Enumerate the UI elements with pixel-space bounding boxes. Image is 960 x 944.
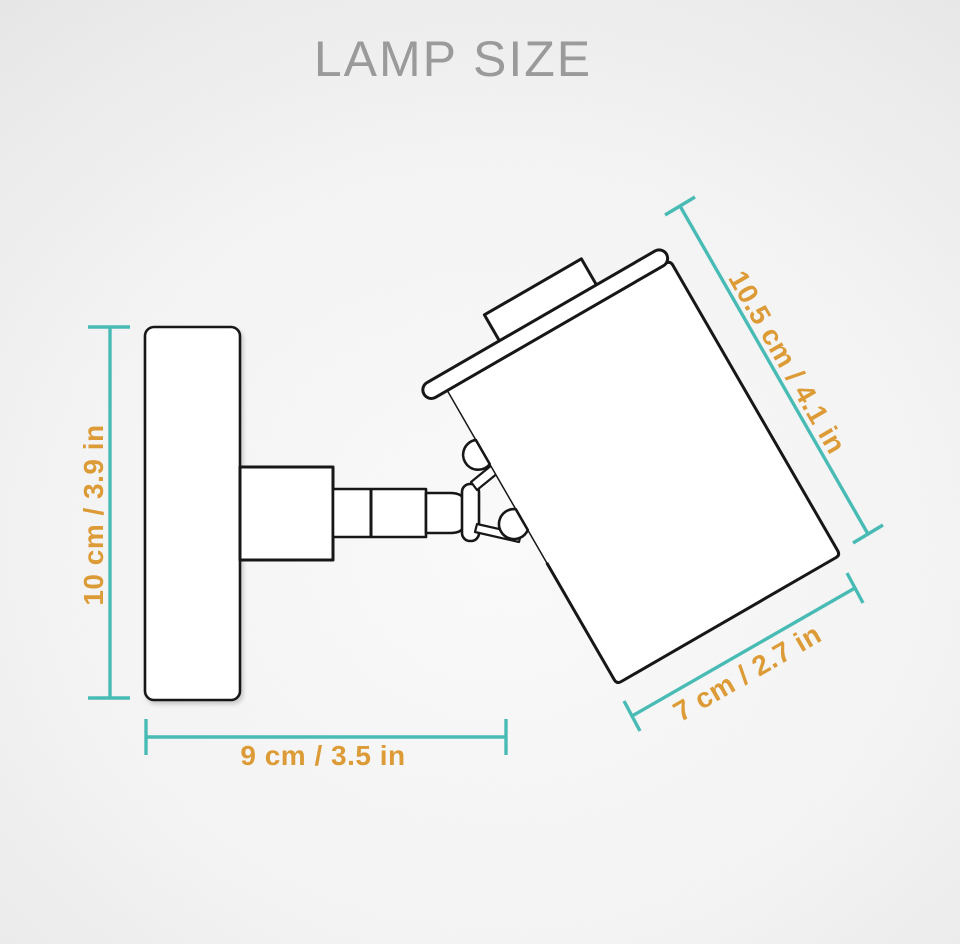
arm-segment <box>333 489 426 537</box>
wall-plate <box>145 327 240 700</box>
dim-label-wall-plate-height: 10 cm / 3.9 in <box>78 424 109 605</box>
lamp-size-diagram: LAMP SIZE <box>0 0 960 944</box>
dim-label-depth: 9 cm / 3.5 in <box>240 740 405 771</box>
arm-tip <box>426 493 464 533</box>
lamp-drawing: 10 cm / 3.9 in 9 cm / 3.5 in 10.5 cm / 4… <box>0 0 960 944</box>
mount-block <box>240 467 333 560</box>
wall-plate-outline <box>145 327 240 700</box>
